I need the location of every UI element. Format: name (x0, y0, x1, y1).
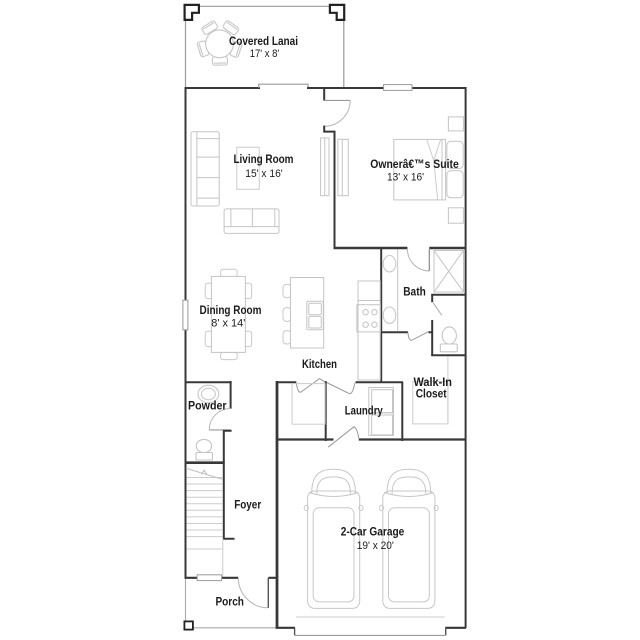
svg-text:Closet: Closet (416, 386, 447, 400)
svg-text:8' x 14': 8' x 14' (211, 318, 245, 330)
svg-text:Laundry: Laundry (345, 404, 383, 418)
svg-text:13' x 16': 13' x 16' (387, 172, 424, 184)
svg-text:Foyer: Foyer (234, 498, 261, 512)
svg-text:Powder: Powder (188, 399, 227, 413)
svg-text:Ownerâ€™s Suite: Ownerâ€™s Suite (370, 157, 459, 171)
svg-text:19' x 20': 19' x 20' (357, 540, 394, 552)
svg-text:Covered Lanai: Covered Lanai (229, 34, 298, 48)
svg-text:Living Room: Living Room (234, 152, 294, 166)
svg-text:15' x 16': 15' x 16' (245, 168, 283, 180)
svg-text:Porch: Porch (215, 595, 244, 609)
svg-text:17' x 8': 17' x 8' (250, 48, 280, 60)
svg-text:2-Car Garage: 2-Car Garage (341, 524, 405, 538)
svg-text:Kitchen: Kitchen (302, 357, 337, 371)
svg-text:Dining Room: Dining Room (200, 303, 262, 317)
svg-text:Bath: Bath (403, 285, 426, 299)
